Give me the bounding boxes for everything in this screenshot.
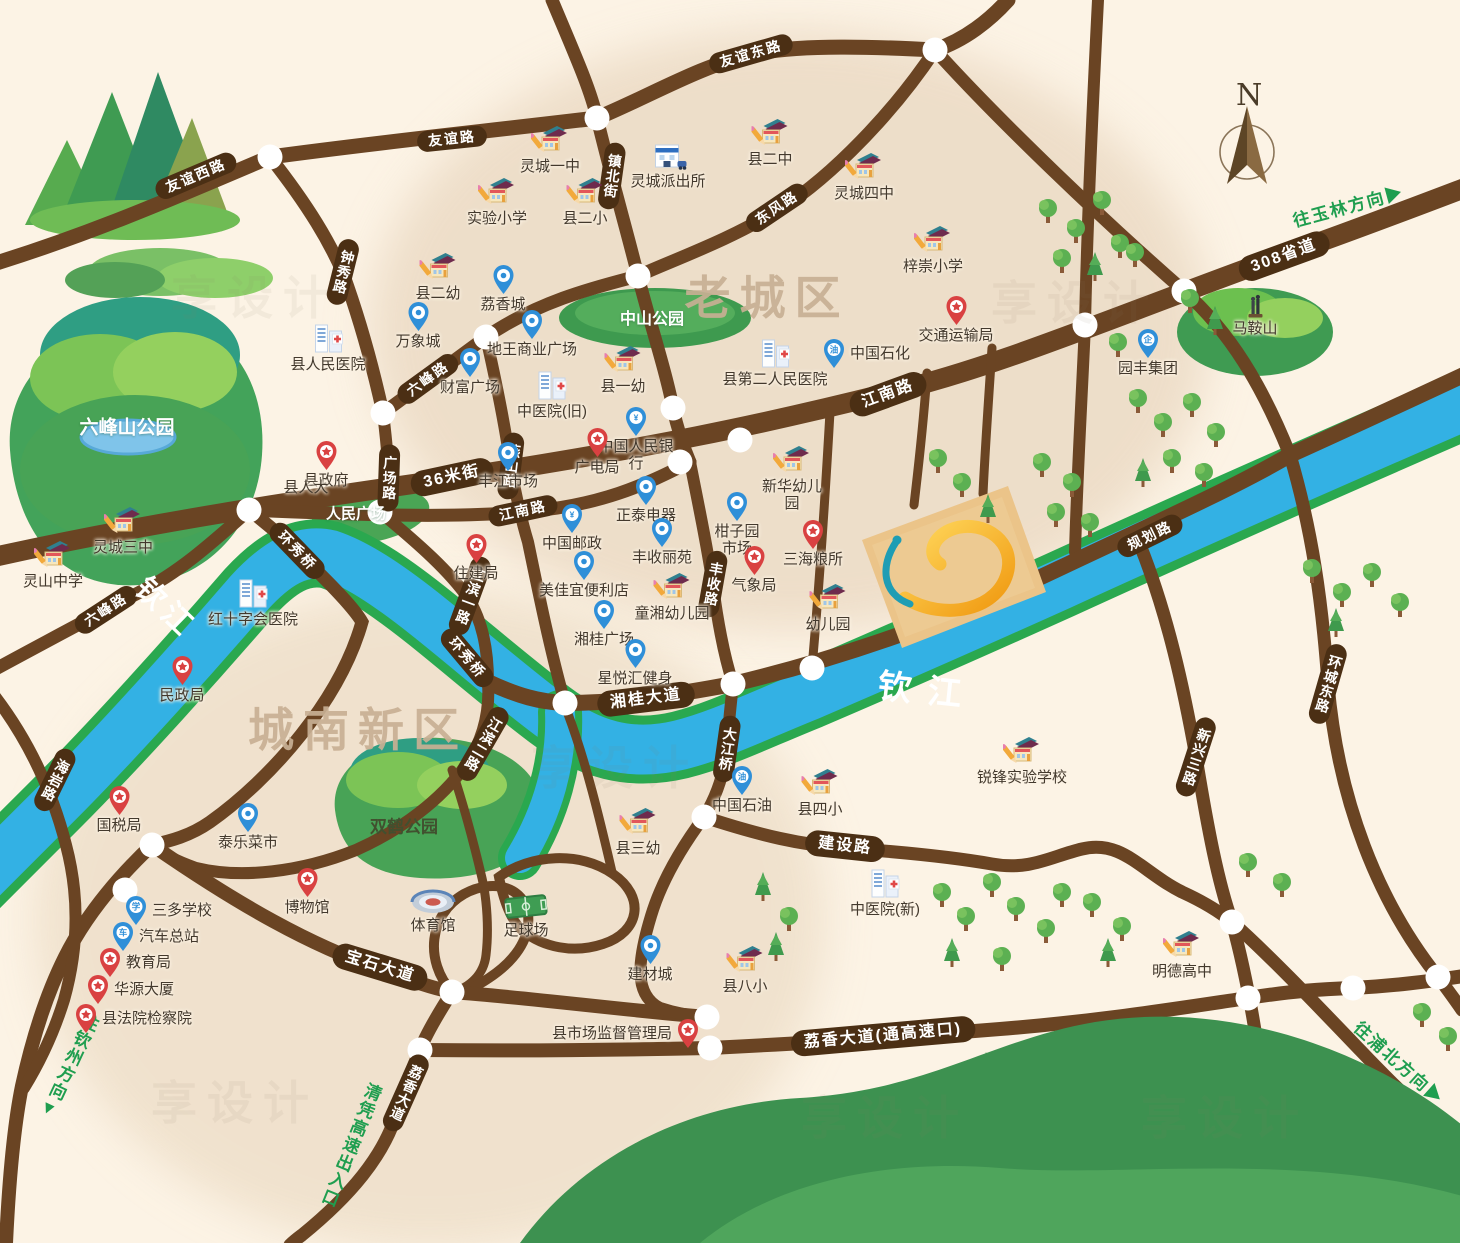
- poi-pin-blue: 丰收丽苑: [632, 518, 692, 566]
- poi-label: 建材城: [627, 966, 672, 983]
- pin-blue-icon: [236, 803, 260, 833]
- label-layer: N 友谊西路友谊路友谊东路镇北街东风路钟秀路六峰路燕山路广场路36米街江南路江南…: [0, 0, 1460, 1243]
- poi-label: 汽车总站: [139, 928, 199, 945]
- poi-label: 博物馆: [284, 899, 329, 916]
- school-icon: [566, 175, 604, 209]
- poi-pin-red: 博物馆: [284, 868, 329, 916]
- poi-school: 幼儿园: [805, 581, 850, 633]
- poi-label: 梓崇小学: [903, 258, 963, 275]
- poi-label: 园丰集团: [1118, 360, 1178, 377]
- district-label: 老城区: [685, 262, 850, 328]
- poi-school: 灵城三中: [93, 504, 153, 556]
- road-label: 环秀桥: [436, 624, 497, 691]
- poi-pin-blue: ¥中国邮政: [542, 504, 602, 552]
- poi-school: 县二小: [562, 175, 607, 227]
- poi-pin-blue: 正泰电器: [616, 476, 676, 524]
- watermark: 享设计: [531, 732, 699, 798]
- pin-red-icon: [170, 656, 194, 686]
- poi-school: 明德高中: [1152, 928, 1212, 980]
- pin-blue-icon: 企: [1136, 329, 1160, 359]
- pin-blue-icon: [623, 639, 647, 669]
- school-icon: [653, 570, 691, 604]
- poi-label: 灵山中学: [23, 573, 83, 590]
- poi-school: 县二中: [747, 116, 792, 168]
- road-label: 荔香大道: [380, 1051, 433, 1135]
- poi-label: 中医院(旧): [517, 403, 587, 420]
- hospital-icon: [308, 321, 348, 355]
- poi-label: 县三幼: [615, 840, 660, 857]
- direction-label: 往玉林方向▶: [1290, 178, 1407, 232]
- poi-label: 县人民医院: [290, 356, 365, 373]
- poi-pin-red: 县法院检察院: [74, 1004, 192, 1034]
- poi-label: 县二中: [747, 151, 792, 168]
- poi-pin-red: 国税局: [96, 786, 141, 834]
- pin-red-icon: [464, 534, 488, 564]
- school-icon: [419, 250, 457, 284]
- poi-label: 三多学校: [152, 902, 212, 919]
- pin-red-icon: [801, 520, 825, 550]
- poi-label: 灵城一中: [520, 158, 580, 175]
- pin-blue-icon: [406, 302, 430, 332]
- poi-pin-blue: 油中国石油: [712, 766, 772, 814]
- school-icon: [914, 223, 952, 257]
- hospital-icon: [532, 368, 572, 402]
- poi-hospital: 中医院(旧): [517, 368, 587, 420]
- pin-blue-icon: [638, 935, 662, 965]
- svg-text:企: 企: [1143, 335, 1153, 345]
- road-label: 海岩路: [31, 745, 80, 815]
- poi-statue: 马鞍山: [1232, 292, 1277, 337]
- pin-blue-icon: [592, 600, 616, 630]
- watermark: 享设计: [801, 1082, 969, 1148]
- compass-north-label: N: [1236, 78, 1262, 113]
- pin-red-icon: [314, 441, 338, 471]
- pin-blue-icon: [572, 551, 596, 581]
- poi-school: 锐锋实验学校: [977, 734, 1067, 786]
- park-label: 六峰山公园: [79, 413, 174, 440]
- road-label: 环秀桥: [265, 518, 329, 583]
- poi-label: 县人大: [283, 479, 328, 496]
- poi-label: 锐锋实验学校: [977, 769, 1067, 786]
- svg-text:车: 车: [119, 928, 128, 938]
- svg-text:¥: ¥: [570, 510, 575, 520]
- poi-pin-red: 广电局: [574, 428, 619, 476]
- map-canvas: N 友谊西路友谊路友谊东路镇北街东风路钟秀路六峰路燕山路广场路36米街江南路江南…: [0, 0, 1460, 1243]
- poi-label: 中国石化: [850, 345, 910, 362]
- poi-pin-blue: 荔香城: [480, 265, 525, 313]
- poi-school: 灵城一中: [520, 123, 580, 175]
- poi-label: 明德高中: [1152, 963, 1212, 980]
- pin-red-icon: [742, 546, 766, 576]
- pin-blue-icon: ¥: [560, 504, 584, 534]
- watermark: 享设计: [171, 262, 339, 328]
- pin-blue-icon: [496, 442, 520, 472]
- poi-label: 丰收丽苑: [632, 549, 692, 566]
- poi-school: 县四小: [797, 766, 842, 818]
- poi-school: 县二幼: [415, 250, 460, 302]
- pin-blue-icon: 油: [730, 766, 754, 796]
- school-icon: [809, 581, 847, 615]
- svg-text:油: 油: [738, 772, 747, 782]
- poi-label: 灵城三中: [93, 539, 153, 556]
- pin-red-icon: [98, 948, 122, 978]
- poi-label: 星悦汇健身: [597, 670, 672, 687]
- school-icon: [604, 343, 642, 377]
- park-label: 中山公园: [620, 305, 684, 329]
- poi-label: 地王商业广场: [487, 341, 577, 358]
- school-icon: [845, 150, 883, 184]
- road-label: 建设路: [804, 829, 886, 863]
- poi-label: 县二幼: [415, 285, 460, 302]
- road-label: 新兴三路: [1173, 715, 1219, 800]
- pin-red-icon: [86, 975, 110, 1005]
- road-label: 友谊东路: [707, 32, 796, 76]
- poi-hospital: 红十字会医院: [208, 576, 298, 628]
- pin-red-icon: [107, 786, 131, 816]
- poi-school: 灵山中学: [23, 538, 83, 590]
- road-label: 环城东路: [1306, 642, 1349, 727]
- poi-pin-blue: 建材城: [627, 935, 672, 983]
- poi-label: 童湘幼儿园: [634, 605, 709, 622]
- school-icon: [751, 116, 789, 150]
- pin-blue-icon: [725, 492, 749, 522]
- hospital-icon: [865, 866, 905, 900]
- school-icon: [726, 943, 764, 977]
- poi-pin-red: 民政局: [159, 656, 204, 704]
- river-label: 钦江: [876, 658, 981, 717]
- direction-label: 往浦北方向▶: [1349, 1015, 1450, 1110]
- poi-label: 灵城派出所: [630, 173, 705, 190]
- poi-pin-blue: 丰江市场: [478, 442, 538, 490]
- poi-label: 灵城四中: [834, 185, 894, 202]
- poi-label: 红十字会医院: [208, 611, 298, 628]
- hospital-icon: [233, 576, 273, 610]
- poi-pin-blue: 企园丰集团: [1118, 329, 1178, 377]
- poi-pin-blue: 星悦汇健身: [597, 639, 672, 687]
- pin-red-icon: [585, 428, 609, 458]
- poi-pin-red: 三海粮所: [783, 520, 843, 568]
- poi-label: 县第二人民医院: [722, 371, 827, 388]
- school-icon: [619, 805, 657, 839]
- park-label: 人民广场: [326, 503, 386, 524]
- poi-school: 灵城四中: [834, 150, 894, 202]
- poi-pin-red: 气象局: [731, 546, 776, 594]
- poi-label: 县四小: [797, 801, 842, 818]
- poi-pin-blue: 油中国石化: [822, 339, 910, 369]
- svg-text:油: 油: [830, 345, 839, 355]
- field-icon: [503, 893, 549, 921]
- statue-icon: [1244, 292, 1266, 319]
- police-icon: [649, 140, 687, 172]
- pin-blue-icon: ¥: [624, 407, 648, 437]
- pin-blue-icon: [650, 518, 674, 548]
- poi-label: 县二小: [562, 210, 607, 227]
- direction-text: 往玉林方向: [1291, 188, 1388, 231]
- poi-label: 县八小: [722, 978, 767, 995]
- pin-blue-icon: [520, 310, 544, 340]
- poi-school: 县八小: [722, 943, 767, 995]
- poi-school: 童湘幼儿园: [634, 570, 709, 622]
- road-label: 荔香大道(通高速口): [790, 1015, 976, 1057]
- poi-label: 县一幼: [600, 378, 645, 395]
- poi-label: 中医院(新): [850, 901, 920, 918]
- watermark: 享设计: [991, 267, 1159, 333]
- svg-text:¥: ¥: [634, 413, 639, 423]
- school-icon: [531, 123, 569, 157]
- school-icon: [773, 443, 811, 477]
- river-label: 钦江: [127, 565, 209, 647]
- road-label: 友谊路: [416, 125, 488, 154]
- pin-blue-icon: [491, 265, 515, 295]
- poi-label: 足球场: [503, 922, 548, 939]
- poi-pin-blue: 地王商业广场: [487, 310, 577, 358]
- poi-label: 县市场监督管理局: [552, 1025, 672, 1042]
- road-label: 宝石大道: [329, 940, 430, 993]
- poi-school: 实验小学: [467, 175, 527, 227]
- poi-pin-red: 交通运输局: [918, 296, 993, 344]
- pin-red-icon: [295, 868, 319, 898]
- poi-pin-red: 县市场监督管理局: [552, 1019, 700, 1049]
- road-label: 东风路: [742, 180, 812, 237]
- poi-label: 体育馆: [410, 917, 455, 934]
- poi-label: 新华幼儿园: [759, 478, 825, 513]
- poi-pin-red: 华源大厦: [86, 975, 174, 1005]
- poi-label: 实验小学: [467, 210, 527, 227]
- park-label: 双鹤公园: [370, 813, 438, 838]
- school-icon: [1003, 734, 1041, 768]
- poi-hospital: 县人民医院: [290, 321, 365, 373]
- school-icon: [1163, 928, 1201, 962]
- school-icon: [478, 175, 516, 209]
- poi-label: 中国石油: [712, 797, 772, 814]
- poi-label: 幼儿园: [805, 616, 850, 633]
- school-icon: [104, 504, 142, 538]
- poi-label: 财富广场: [440, 379, 500, 396]
- poi-label: 县法院检察院: [102, 1010, 192, 1027]
- poi-school: 县一幼: [600, 343, 645, 395]
- poi-pin-blue: 美佳宜便利店: [539, 551, 629, 599]
- pin-blue-icon: [634, 476, 658, 506]
- district-label: 城南新区: [248, 694, 468, 760]
- poi-label: 广电局: [574, 459, 619, 476]
- poi-label: 气象局: [731, 577, 776, 594]
- poi-pin-red: 教育局: [98, 948, 171, 978]
- poi-label: 教育局: [126, 954, 171, 971]
- watermark: 享设计: [1141, 1082, 1309, 1148]
- poi-hospital: 县第二人民医院: [722, 336, 827, 388]
- hospital-icon: [755, 336, 795, 370]
- poi-pin-blue: 泰乐菜市: [218, 803, 278, 851]
- road-label: 友谊西路: [152, 149, 240, 202]
- pin-blue-icon: [458, 348, 482, 378]
- road-label: 308省道: [1235, 228, 1333, 284]
- svg-text:学: 学: [132, 902, 141, 912]
- poi-label: 交通运输局: [918, 327, 993, 344]
- poi-school: 县三幼: [615, 805, 660, 857]
- watermark: 享设计: [151, 1067, 319, 1133]
- poi-field: 足球场: [503, 893, 549, 939]
- poi-label: 华源大厦: [114, 981, 174, 998]
- road-label: 六峰路: [71, 582, 141, 638]
- school-icon: [34, 538, 72, 572]
- stadium-icon: [410, 888, 456, 916]
- poi-label: 泰乐菜市: [218, 834, 278, 851]
- poi-label: 万象城: [395, 333, 440, 350]
- road-label: 江南路: [846, 368, 930, 419]
- poi-label: 国税局: [96, 817, 141, 834]
- poi-pin-blue: 万象城: [395, 302, 440, 350]
- road-label: 规划路: [1114, 511, 1186, 561]
- poi-pin-red: 住建局: [453, 534, 498, 582]
- poi-pin-blue: 财富广场: [440, 348, 500, 396]
- poi-school: 梓崇小学: [903, 223, 963, 275]
- poi-label: 三海粮所: [783, 551, 843, 568]
- pin-blue-icon: 油: [822, 339, 846, 369]
- direction-arrow-icon: ▶: [1383, 183, 1406, 206]
- school-icon: [801, 766, 839, 800]
- poi-label: 中国邮政: [542, 535, 602, 552]
- poi-label: 丰江市场: [478, 473, 538, 490]
- direction-label: 清凭高速出入口: [313, 1079, 386, 1212]
- pin-red-icon: [944, 296, 968, 326]
- poi-label: 美佳宜便利店: [539, 582, 629, 599]
- direction-text: 往浦北方向: [1350, 1018, 1433, 1096]
- poi-label: 马鞍山: [1232, 320, 1277, 337]
- poi-label: 民政局: [159, 687, 204, 704]
- poi-label: 住建局: [453, 565, 498, 582]
- pin-red-icon: [676, 1019, 700, 1049]
- poi-hospital: 中医院(新): [850, 866, 920, 918]
- poi-police: 灵城派出所: [630, 140, 705, 190]
- poi-none: 县人大: [283, 479, 328, 496]
- direction-text: 清凭高速出入口: [316, 1080, 383, 1210]
- pin-red-icon: [74, 1004, 98, 1034]
- poi-stadium: 体育馆: [410, 888, 456, 934]
- poi-school: 新华幼儿园: [759, 443, 825, 513]
